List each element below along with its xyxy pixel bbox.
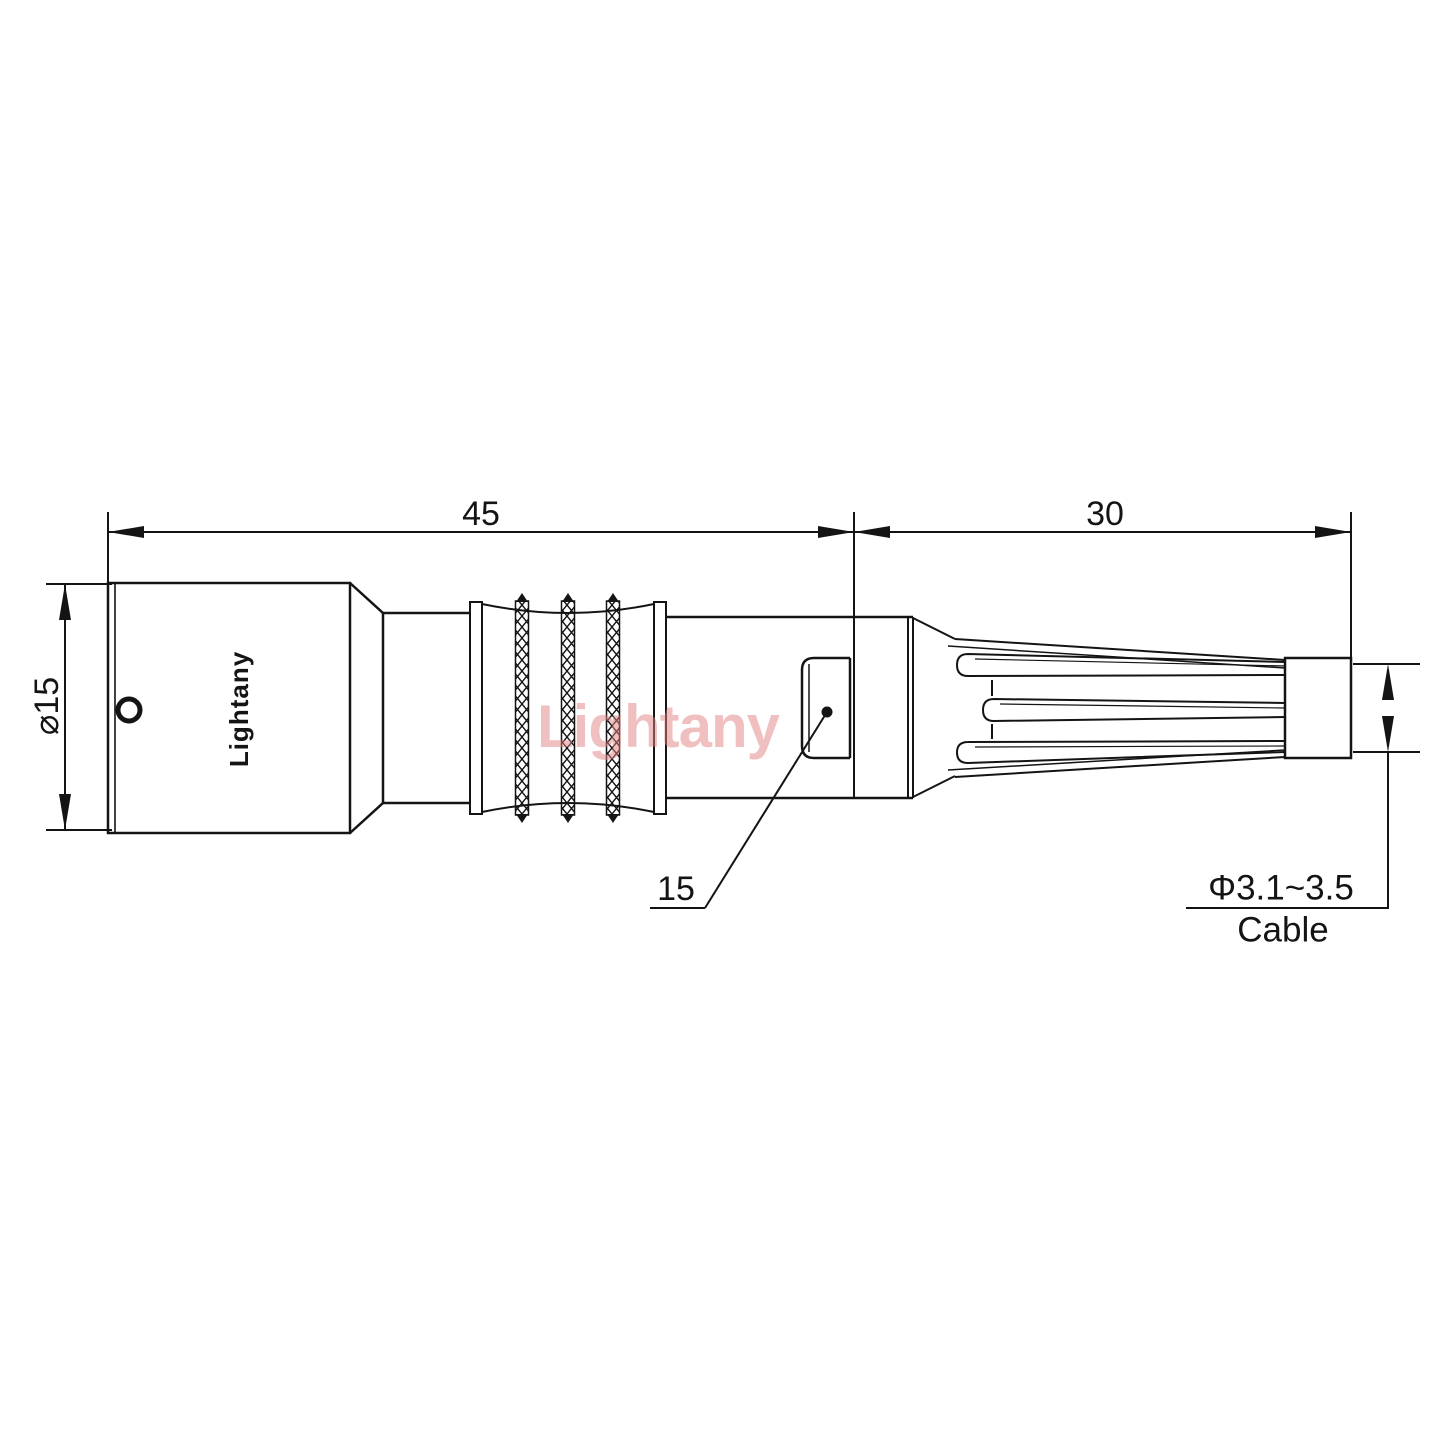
- arrow-right-icon: [1315, 526, 1351, 538]
- arrow-right-icon: [818, 526, 854, 538]
- arrow-left-icon: [854, 526, 890, 538]
- neck-section: [383, 613, 470, 803]
- dim-body-diameter-label: ⌀15: [30, 677, 64, 735]
- arrow-down-icon: [1382, 716, 1394, 752]
- arrow-down-icon: [59, 794, 71, 830]
- cable-diameter-label: Φ3.1~3.5: [1208, 871, 1354, 906]
- cable-label: Cable: [1237, 913, 1328, 948]
- cable-end-ferrule: [1285, 658, 1351, 758]
- leader-dot-icon: [822, 707, 833, 718]
- technical-drawing-page: Lightany 45 30 ⌀15 15 Φ3.1~3.5 Cable Lig…: [0, 0, 1440, 1440]
- body-hole: [118, 699, 140, 721]
- dim-boot-length-label: 30: [1086, 497, 1124, 531]
- knurl-band: [516, 593, 529, 823]
- arrow-up-icon: [1382, 664, 1394, 700]
- dim-overall-length-label: 45: [462, 497, 500, 531]
- latch-size-label: 15: [657, 872, 695, 906]
- watermark-text: Lightany: [537, 697, 779, 757]
- strain-relief-boot: [908, 617, 1285, 798]
- brand-text: Lightany: [226, 651, 252, 767]
- arrow-up-icon: [59, 584, 71, 620]
- dimension-boot-length: [854, 512, 1351, 798]
- arrow-left-icon: [108, 526, 144, 538]
